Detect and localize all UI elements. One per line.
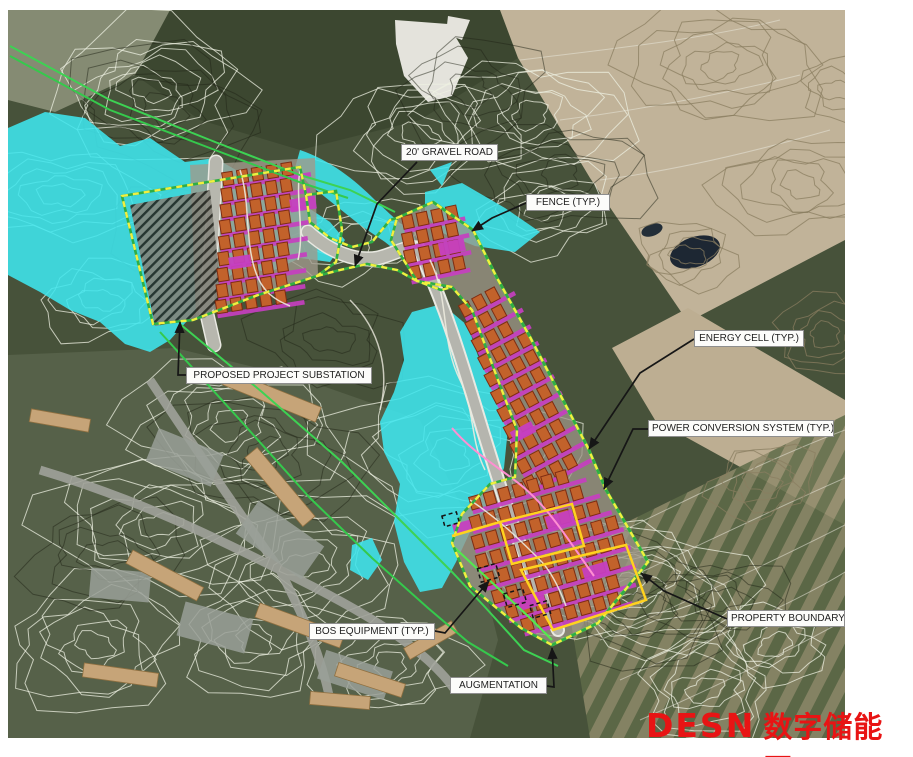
map-label-bos-equipment: BOS EQUIPMENT (TYP.) — [309, 623, 435, 640]
watermark-brand: DESN — [646, 706, 755, 745]
map-label-energy-cell: ENERGY CELL (TYP.) — [694, 330, 804, 347]
watermark: DESN 数字储能网 — [646, 704, 913, 757]
site-plan-map — [0, 0, 913, 757]
map-label-augmentation: AUGMENTATION — [450, 677, 547, 694]
map-label-power-conversion: POWER CONVERSION SYSTEM (TYP.) — [648, 420, 834, 437]
watermark-cjk: 数字储能网 — [763, 704, 913, 757]
map-label-gravel-road: 20' GRAVEL ROAD — [401, 144, 498, 161]
map-label-property-boundary: PROPERTY BOUNDARY — [727, 610, 845, 627]
map-label-substation: PROPOSED PROJECT SUBSTATION — [186, 367, 372, 384]
site-plan-page: 20' GRAVEL ROADFENCE (TYP.)ENERGY CELL (… — [0, 0, 913, 757]
map-label-fence: FENCE (TYP.) — [526, 194, 610, 211]
